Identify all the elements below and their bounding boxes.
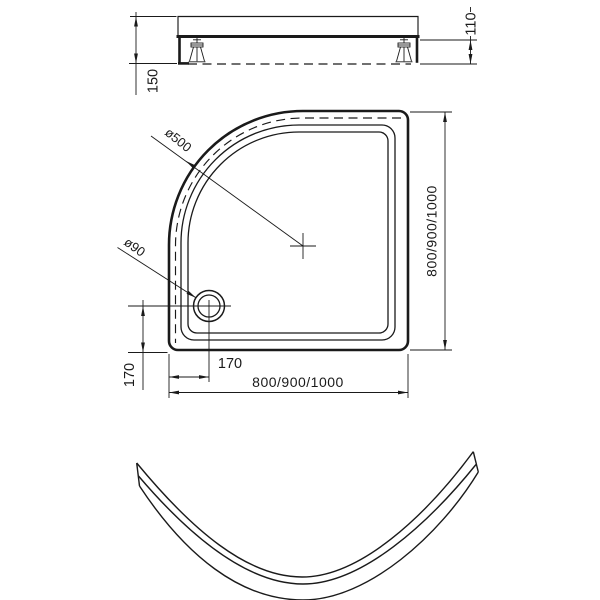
drain-diameter-callout: ø90	[118, 234, 196, 297]
plan-view: ø500 ø90 170	[118, 111, 453, 398]
panel-flange-edge	[139, 465, 477, 585]
dim-text-width-options: 800/900/1000	[252, 374, 344, 390]
panel-right-end	[473, 452, 478, 472]
dimension-total-height: 150	[129, 12, 177, 95]
basin-outer-edge	[181, 125, 395, 340]
panel-top-edge	[137, 452, 474, 577]
adjustable-foot-right	[396, 38, 413, 62]
drawing-canvas: 150 110 ø500	[0, 0, 600, 600]
dimension-bottom-group: 170 800/900/1000	[169, 354, 408, 398]
adjustable-foot-left	[189, 38, 206, 62]
dim-text-drain-offset-bottom: 170	[218, 356, 242, 372]
tray-outer-outline	[169, 111, 408, 350]
side-view: 150 110	[129, 7, 480, 95]
dim-text-depth-options: 800/900/1000	[423, 185, 439, 277]
dimension-depth-group: 800/900/1000	[410, 112, 452, 350]
dim-text-clearance-height: 110	[464, 12, 480, 35]
basin-inner-edge	[188, 132, 388, 333]
dim-text-corner-diameter: ø500	[162, 125, 194, 155]
dimension-clearance-height: 110	[420, 7, 480, 64]
panel-view	[137, 452, 479, 600]
tray-body-outline	[178, 17, 418, 37]
dim-text-drain-offset-side: 170	[122, 363, 138, 387]
technical-drawing: 150 110 ø500	[0, 0, 600, 600]
dim-text-drain-diameter: ø90	[121, 234, 148, 259]
panel-bottom-edge	[140, 472, 479, 600]
dim-text-total-height: 150	[146, 69, 162, 93]
dimension-drain-offset-side: 170	[122, 300, 167, 390]
